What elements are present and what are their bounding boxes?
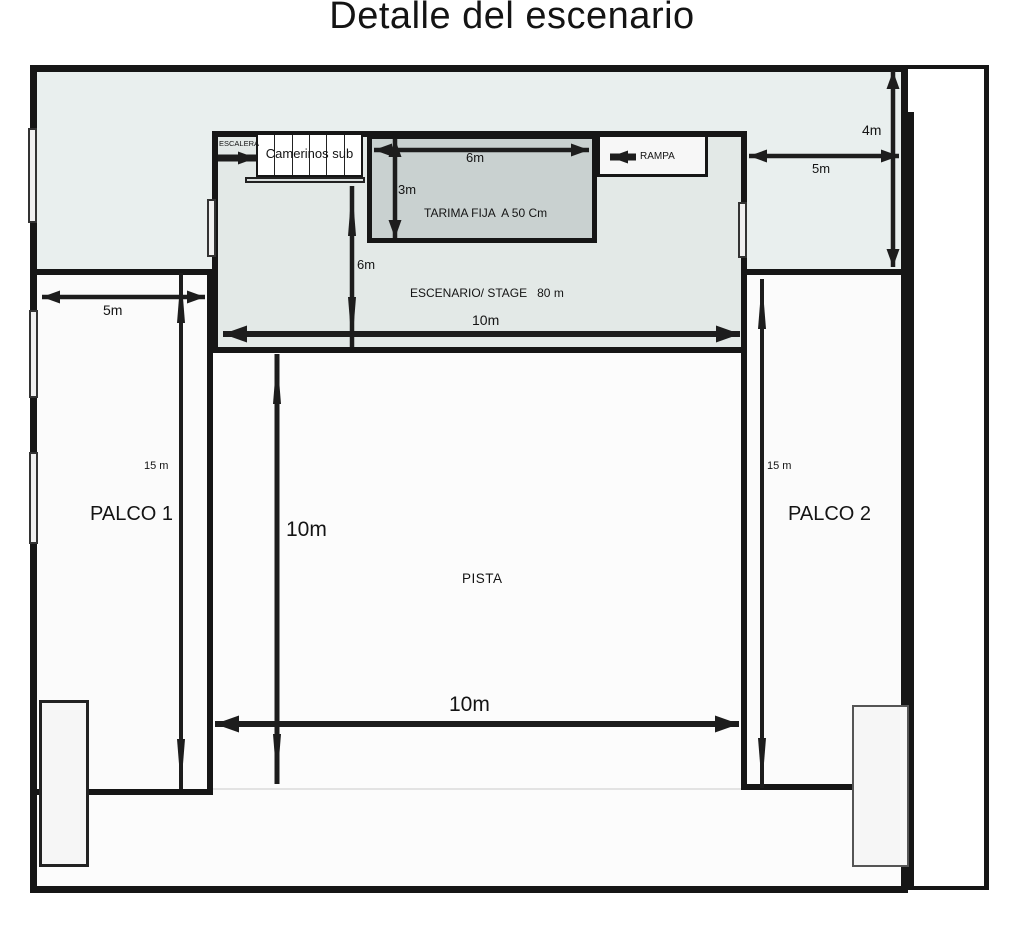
door-marker <box>738 202 747 258</box>
door-marker <box>207 199 216 257</box>
palco1-width-value: 5m <box>103 303 122 318</box>
pista-width-value: 10m <box>449 693 490 716</box>
tarima-width-value: 6m <box>466 151 484 165</box>
stage-depth-value: 6m <box>357 258 375 272</box>
right-corridor <box>908 65 989 890</box>
palco1-label: PALCO 1 <box>90 503 173 525</box>
palco1-length-value: 15 m <box>144 460 168 472</box>
camerinos-label: Camerinos sub <box>256 147 363 161</box>
door-marker <box>28 128 37 223</box>
bottom-left-structure <box>39 700 89 867</box>
door-marker <box>29 310 38 398</box>
palco2-label: PALCO 2 <box>788 503 871 525</box>
bottom-right-structure <box>852 705 909 867</box>
stage-label: ESCENARIO/ STAGE 80 m <box>410 287 564 300</box>
right-height-value: 4m <box>862 123 881 138</box>
door-marker <box>29 452 38 544</box>
pista-floor-line <box>213 788 741 790</box>
stage-plan-diagram: Detalle del escenario <box>0 0 1024 948</box>
rampa-label: RAMPA <box>640 151 675 162</box>
palco2-length-value: 15 m <box>767 460 791 472</box>
stairs-platform <box>245 177 365 183</box>
page-title: Detalle del escenario <box>0 0 1024 38</box>
pista-depth-value: 10m <box>286 518 327 541</box>
escalera-label: ESCALERA <box>219 140 259 148</box>
right-width-value: 5m <box>812 162 830 176</box>
tarima-label: TARIMA FIJA A 50 Cm <box>424 207 547 220</box>
tarima-depth-value: 3m <box>398 183 416 197</box>
pista-label: PISTA <box>462 572 503 587</box>
stage-width-value: 10m <box>472 313 499 328</box>
